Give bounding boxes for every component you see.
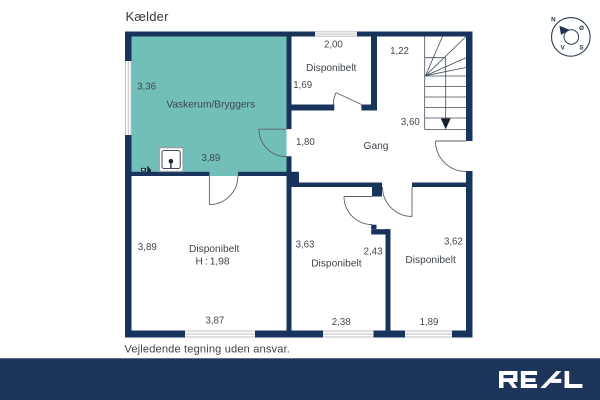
svg-text:Vejledende tegning uden ansvar: Vejledende tegning uden ansvar.: [124, 343, 290, 355]
svg-text:2,38: 2,38: [332, 317, 351, 328]
svg-text:1,69: 1,69: [293, 80, 312, 91]
svg-text:3,62: 3,62: [444, 236, 463, 247]
svg-text:H : 1,98: H : 1,98: [195, 256, 229, 267]
svg-text:Vaskerum/Bryggers: Vaskerum/Bryggers: [166, 99, 255, 110]
svg-text:2,43: 2,43: [364, 247, 383, 258]
svg-text:1,22: 1,22: [390, 46, 409, 57]
svg-text:1,89: 1,89: [420, 317, 439, 328]
svg-text:S: S: [579, 44, 583, 51]
svg-text:Disponibelt: Disponibelt: [189, 244, 240, 255]
svg-text:Ø: Ø: [579, 25, 584, 32]
svg-text:Disponibelt: Disponibelt: [306, 63, 357, 74]
svg-text:Disponibelt: Disponibelt: [405, 255, 456, 266]
svg-text:3,87: 3,87: [205, 316, 224, 327]
svg-text:Disponibelt: Disponibelt: [311, 258, 362, 269]
svg-text:3,36: 3,36: [137, 81, 156, 92]
svg-text:3,63: 3,63: [296, 239, 315, 250]
svg-text:Gang: Gang: [364, 141, 389, 152]
svg-text:2,00: 2,00: [324, 40, 343, 51]
svg-text:Kælder: Kælder: [126, 9, 170, 24]
svg-text:3,89: 3,89: [138, 242, 157, 253]
svg-text:3,60: 3,60: [401, 117, 420, 128]
svg-text:1,80: 1,80: [296, 137, 315, 148]
svg-text:3,89: 3,89: [201, 153, 220, 164]
svg-text:N: N: [551, 16, 556, 23]
